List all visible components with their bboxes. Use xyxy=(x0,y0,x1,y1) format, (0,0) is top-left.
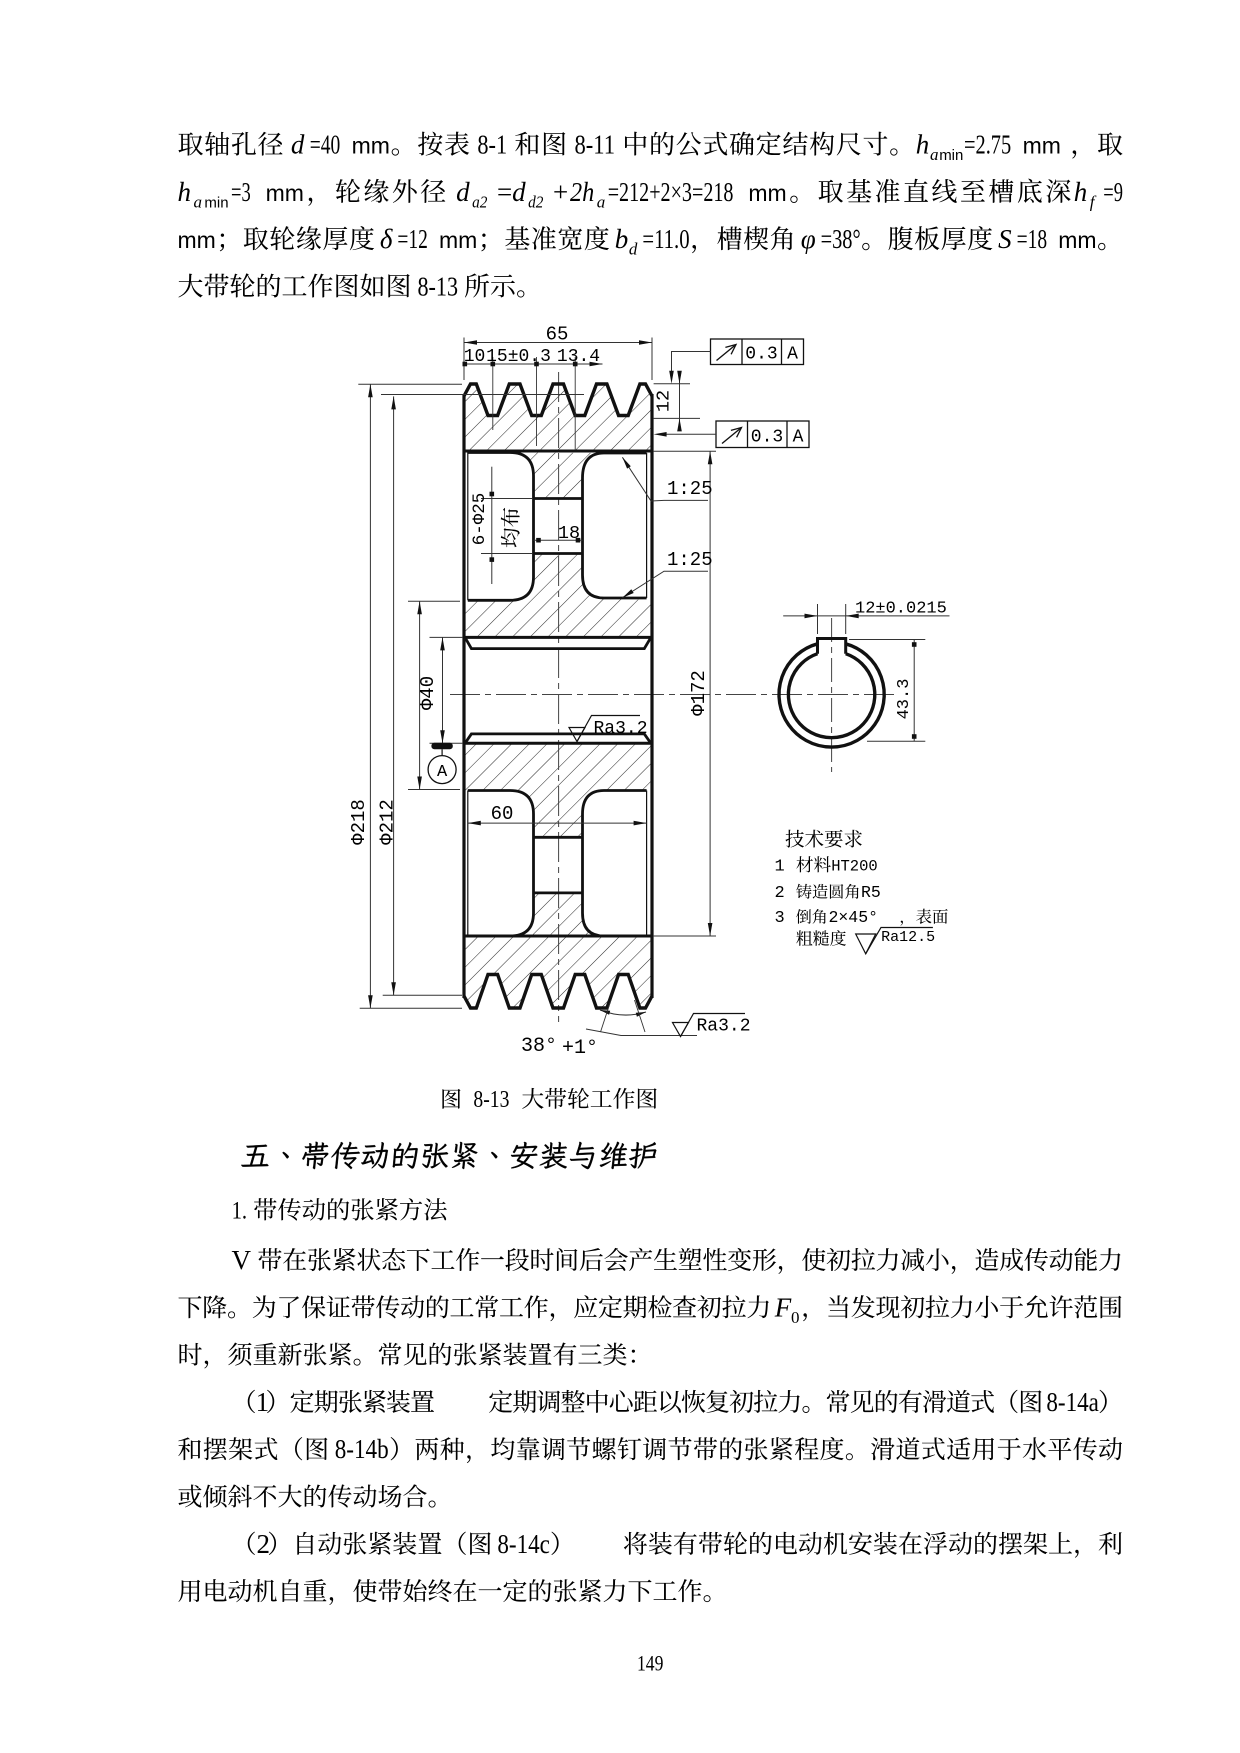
svg-text:Φ40: Φ40 xyxy=(417,676,439,710)
svg-text:=3: =3 xyxy=(231,177,251,207)
svg-text:1.: 1. xyxy=(232,1198,248,1225)
svg-text:60: 60 xyxy=(491,803,514,825)
svg-text:10: 10 xyxy=(464,347,486,367)
svg-text:=9: =9 xyxy=(1103,177,1123,207)
svg-text:A: A xyxy=(437,763,448,782)
svg-text:h: h xyxy=(916,130,930,160)
svg-text:F: F xyxy=(774,1292,792,1322)
svg-text:a: a xyxy=(597,192,606,211)
svg-text:12±0.0215: 12±0.0215 xyxy=(855,600,947,619)
svg-text:3: 3 xyxy=(775,909,785,928)
svg-text:65: 65 xyxy=(546,324,569,346)
svg-text:0: 0 xyxy=(791,1308,800,1327)
svg-text:h: h xyxy=(178,177,192,207)
svg-text:0.3: 0.3 xyxy=(745,345,777,365)
svg-text:Ra12.5: Ra12.5 xyxy=(881,929,935,946)
svg-text:S: S xyxy=(998,224,1012,254)
svg-text:8-14a: 8-14a xyxy=(1046,1387,1099,1417)
svg-text:d: d xyxy=(456,177,470,207)
svg-text:38°: 38° xyxy=(521,1035,557,1058)
svg-text:mm: mm xyxy=(352,133,390,159)
svg-text:A: A xyxy=(787,345,798,365)
svg-text:Φ172: Φ172 xyxy=(688,670,710,716)
svg-text:φ: φ xyxy=(801,224,816,254)
svg-text:149: 149 xyxy=(637,1651,663,1676)
svg-text:a: a xyxy=(930,145,939,164)
svg-text:A: A xyxy=(793,428,804,448)
svg-text:+: + xyxy=(551,177,569,207)
svg-text:=: = xyxy=(495,177,513,207)
svg-text:Φ212: Φ212 xyxy=(377,799,399,845)
svg-text:δ: δ xyxy=(380,224,393,254)
svg-text:2h: 2h xyxy=(570,177,594,207)
svg-text:=40: =40 xyxy=(310,130,341,160)
svg-text:mm: mm xyxy=(178,227,216,253)
svg-text:min: min xyxy=(939,147,963,164)
svg-text:8-1: 8-1 xyxy=(477,130,507,160)
svg-text:R5: R5 xyxy=(861,883,881,902)
svg-text:=12: =12 xyxy=(397,224,428,254)
svg-text:15±0.3: 15±0.3 xyxy=(486,347,551,367)
svg-text:min: min xyxy=(204,194,228,211)
svg-text:a: a xyxy=(194,192,203,211)
svg-text:h: h xyxy=(1074,177,1088,207)
svg-text:=11.0: =11.0 xyxy=(642,224,689,254)
svg-text:=2.75: =2.75 xyxy=(964,130,1011,160)
svg-text:b: b xyxy=(615,224,629,254)
svg-text:8-14c: 8-14c xyxy=(497,1529,550,1559)
svg-text:1:25: 1:25 xyxy=(667,478,713,500)
svg-text:43.3: 43.3 xyxy=(895,679,914,720)
svg-text:2: 2 xyxy=(775,884,785,903)
svg-text:Ra3.2: Ra3.2 xyxy=(594,719,648,739)
svg-text:mm: mm xyxy=(439,227,477,253)
svg-text:8-13: 8-13 xyxy=(418,271,459,301)
svg-text:+1°: +1° xyxy=(562,1037,598,1060)
svg-text:2: 2 xyxy=(257,1529,271,1559)
svg-text:1: 1 xyxy=(775,858,785,877)
svg-text:mm: mm xyxy=(266,180,304,206)
svg-text:=18: =18 xyxy=(1017,224,1048,254)
svg-text:d: d xyxy=(291,130,305,160)
svg-text:=212+2×3=218: =212+2×3=218 xyxy=(608,177,734,207)
svg-text:12: 12 xyxy=(654,390,675,412)
svg-text:V: V xyxy=(232,1245,252,1275)
svg-text:0.3: 0.3 xyxy=(751,428,783,448)
svg-text:d2: d2 xyxy=(528,192,544,211)
svg-text:mm: mm xyxy=(1058,227,1096,253)
svg-text:HT200: HT200 xyxy=(831,858,878,876)
svg-text:18: 18 xyxy=(558,523,580,544)
svg-text:13.4: 13.4 xyxy=(557,347,600,367)
svg-text:1: 1 xyxy=(256,1387,270,1417)
svg-text:8-11: 8-11 xyxy=(575,130,616,160)
svg-text:d: d xyxy=(512,177,526,207)
svg-text:6-Φ25: 6-Φ25 xyxy=(470,493,490,546)
svg-text:Ra3.2: Ra3.2 xyxy=(697,1017,751,1037)
svg-text:=38°: =38° xyxy=(821,224,861,254)
svg-text:d: d xyxy=(629,240,638,259)
svg-text:1:25: 1:25 xyxy=(667,549,713,571)
svg-text:8-13: 8-13 xyxy=(473,1087,509,1113)
svg-text:Φ218: Φ218 xyxy=(348,799,370,845)
svg-text:2×45°: 2×45° xyxy=(829,908,879,927)
svg-text:a2: a2 xyxy=(472,192,488,211)
svg-text:mm: mm xyxy=(748,180,786,206)
svg-text:8-14b: 8-14b xyxy=(335,1434,389,1464)
svg-text:mm: mm xyxy=(1023,133,1061,159)
